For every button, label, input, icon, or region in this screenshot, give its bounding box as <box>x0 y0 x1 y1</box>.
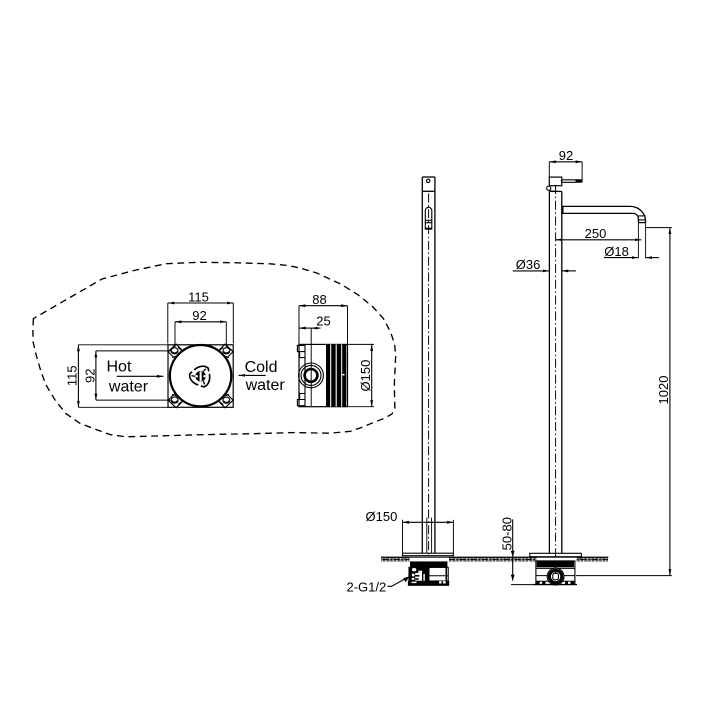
svg-text:Ø150: Ø150 <box>366 509 398 524</box>
svg-text:50-80: 50-80 <box>499 517 514 550</box>
svg-text:Hot: Hot <box>107 359 132 376</box>
svg-text:88: 88 <box>312 292 326 307</box>
svg-text:92: 92 <box>192 308 206 323</box>
svg-text:250: 250 <box>585 226 607 241</box>
svg-text:2-G1/2: 2-G1/2 <box>347 579 387 594</box>
svg-text:Ø36: Ø36 <box>516 257 541 272</box>
svg-text:115: 115 <box>188 289 209 304</box>
svg-text:1020: 1020 <box>656 376 671 405</box>
svg-text:water: water <box>245 377 286 394</box>
svg-text:92: 92 <box>82 369 97 383</box>
svg-text:Ø150: Ø150 <box>358 360 373 392</box>
svg-text:25: 25 <box>316 313 330 328</box>
svg-text:92: 92 <box>559 148 573 163</box>
svg-text:Cold: Cold <box>245 359 278 376</box>
svg-text:Ø18: Ø18 <box>604 244 629 259</box>
svg-text:water: water <box>108 378 149 395</box>
svg-text:115: 115 <box>65 365 80 386</box>
